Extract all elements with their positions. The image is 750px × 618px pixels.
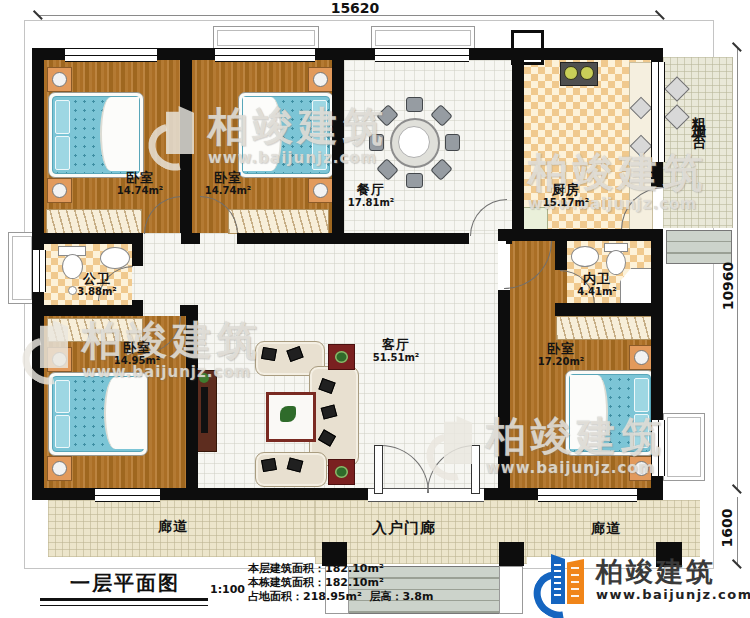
room-label-bedroom-top-left: 卧室 14.74m² xyxy=(117,170,163,197)
wardrobe xyxy=(46,209,142,234)
bed-pillow xyxy=(634,378,649,412)
room-area: 17.20m² xyxy=(538,356,584,368)
room-label-entry-porch: 入户门廊 xyxy=(372,520,436,538)
window xyxy=(651,420,665,476)
wall-segment xyxy=(237,233,344,244)
wall-segment xyxy=(344,233,469,244)
bed-pillow xyxy=(312,136,327,170)
window xyxy=(65,48,157,62)
wardrobe xyxy=(228,209,329,234)
room-label-corridor-right: 廊道 xyxy=(591,520,621,537)
wall-segment xyxy=(181,233,200,244)
room-area: 17.81m² xyxy=(348,197,394,209)
bed-blanket xyxy=(570,375,608,449)
window xyxy=(375,48,469,62)
wall-segment xyxy=(651,476,663,500)
wall-segment xyxy=(44,305,143,316)
wall-segment xyxy=(651,162,663,187)
wall-segment xyxy=(637,488,651,500)
nightstand xyxy=(47,347,72,372)
wall-segment xyxy=(315,48,375,60)
stat-building-area: 本栋建筑面积：182.10m² xyxy=(248,576,433,590)
room-label-bedroom-bottom-right: 卧室 17.20m² xyxy=(538,341,584,368)
entry-door-leaf xyxy=(471,445,480,494)
dining-chair xyxy=(406,173,423,188)
wall-segment xyxy=(555,303,651,316)
wardrobe xyxy=(556,316,653,340)
title-underline-thin xyxy=(40,605,208,606)
dining-chair xyxy=(369,134,384,151)
room-area: 14.74m² xyxy=(117,185,163,197)
logo-building-blue-icon xyxy=(551,554,565,604)
window xyxy=(32,250,46,292)
stove-burner xyxy=(564,66,578,80)
plan-scale: 1:100 xyxy=(210,583,245,596)
bed-pillow xyxy=(634,414,649,448)
logo-building-orange-icon xyxy=(567,559,584,604)
room-label-living: 客厅 51.51m² xyxy=(373,337,419,364)
wall-segment xyxy=(132,244,143,266)
plan-stats: 本层建筑面积：182.10m² 本栋建筑面积：182.10m² 占地面积：218… xyxy=(248,562,433,603)
wall-segment xyxy=(157,48,215,60)
company-name: 柏竣建筑 xyxy=(596,554,716,590)
room-area: 4.41m² xyxy=(577,286,616,298)
nightstand xyxy=(308,178,333,203)
room-area: 3.88m² xyxy=(77,286,116,298)
entry-door-leaf xyxy=(374,445,383,494)
stat-land-area: 占地面积：218.95m² xyxy=(248,590,362,603)
title-underline-thick xyxy=(40,598,208,601)
wall-segment xyxy=(484,488,538,500)
window xyxy=(651,62,665,162)
wall-segment xyxy=(32,292,44,500)
top-bay-bedroom xyxy=(213,26,319,50)
room-label-inner-bath: 内卫 4.41m² xyxy=(577,271,616,298)
room-name: 廊道 xyxy=(591,520,621,537)
dining-chair xyxy=(406,97,423,112)
plant xyxy=(199,373,209,383)
bed-pillow xyxy=(55,415,70,448)
room-area: 14.74m² xyxy=(205,185,251,197)
floor-drain xyxy=(68,286,77,295)
room-name: 内卫 xyxy=(577,271,616,286)
company-url: www.baijunjz.com xyxy=(596,587,750,602)
bed-blanket xyxy=(100,97,139,171)
stat-story-height: 层高：3.8m xyxy=(369,590,433,603)
room-label-platform: 粗加工平台 xyxy=(689,106,708,126)
wall-segment xyxy=(186,316,198,488)
wall-segment xyxy=(332,60,344,233)
wall-segment xyxy=(651,48,663,62)
bed-blanket xyxy=(243,97,282,171)
room-name: 卧室 xyxy=(114,340,160,355)
sofa-side-table xyxy=(328,459,355,485)
wall-segment xyxy=(498,290,510,488)
dining-table-top xyxy=(398,126,430,158)
bed-pillow xyxy=(55,380,70,413)
nightstand xyxy=(47,67,72,92)
wash-basin xyxy=(571,246,599,267)
top-bay-dining xyxy=(371,26,475,50)
wall-segment xyxy=(651,229,663,420)
stat-land-row: 占地面积：218.95m² 层高：3.8m xyxy=(248,590,433,604)
tv xyxy=(201,387,208,433)
porch-pillar-right xyxy=(499,542,524,566)
room-name: 卧室 xyxy=(538,341,584,356)
dining-chair xyxy=(445,134,460,151)
company-logo-icon xyxy=(536,552,592,610)
room-name: 入户门廊 xyxy=(372,520,436,538)
coffee-table-plant xyxy=(280,406,296,422)
room-name: 餐厅 xyxy=(348,182,394,197)
dimension-line-porch xyxy=(737,497,738,565)
entry-steps-side-right xyxy=(499,566,523,614)
wall-segment xyxy=(32,48,44,250)
bed-pillow xyxy=(55,100,70,134)
sofa-cushion xyxy=(261,458,277,472)
wall-segment xyxy=(469,48,663,60)
room-label-bedroom-bottom-left: 卧室 14.95m² xyxy=(114,340,160,367)
dimension-porch-depth: 1600 xyxy=(719,503,735,553)
wall-segment xyxy=(555,241,567,270)
bed-pillow xyxy=(312,100,327,134)
wall-segment xyxy=(180,60,192,233)
bed-blanket xyxy=(104,377,144,449)
sofa-cushion xyxy=(261,347,277,361)
right-bay-window-box xyxy=(663,413,705,481)
room-name: 卧室 xyxy=(205,170,251,185)
stove-burner xyxy=(580,66,594,80)
window xyxy=(95,488,160,502)
room-area: 51.51m² xyxy=(373,352,419,364)
dimension-line-right xyxy=(737,48,738,490)
room-area: 15.17m² xyxy=(543,197,589,209)
bed-pillow xyxy=(55,136,70,170)
room-name: 厨房 xyxy=(543,182,589,197)
nightstand xyxy=(47,178,72,203)
nightstand xyxy=(308,67,333,92)
room-area: 14.95m² xyxy=(114,355,160,367)
nightstand xyxy=(47,456,72,481)
wall-segment xyxy=(512,60,524,233)
room-label-corridor-left: 廊道 xyxy=(158,518,188,535)
window xyxy=(215,48,315,62)
room-name: 客厅 xyxy=(373,337,419,352)
wall-segment xyxy=(44,488,95,500)
dimension-top-width: 15620 xyxy=(322,0,388,16)
room-name: 公卫 xyxy=(77,271,116,286)
wall-segment xyxy=(180,305,198,316)
wall-segment xyxy=(44,233,143,244)
dimension-right-height: 10960 xyxy=(720,258,736,314)
wardrobe xyxy=(47,318,143,342)
plan-title: 一层平面图 xyxy=(44,570,206,597)
room-label-dining: 餐厅 17.81m² xyxy=(348,182,394,209)
room-name: 廊道 xyxy=(158,518,188,535)
room-label-bedroom-top-mid: 卧室 14.74m² xyxy=(205,170,251,197)
room-name: 卧室 xyxy=(117,170,163,185)
sofa-side-table xyxy=(328,344,355,370)
room-label-public-bath: 公卫 3.88m² xyxy=(77,271,116,298)
floor-plan-canvas: 柏竣建筑 www.baijunjz.com 柏竣建筑 www.baijunjz.… xyxy=(0,0,750,618)
wall-segment xyxy=(498,229,663,241)
room-label-kitchen: 厨房 15.17m² xyxy=(543,182,589,209)
stat-floor-area: 本层建筑面积：182.10m² xyxy=(248,562,433,576)
window xyxy=(538,488,637,502)
wall-segment xyxy=(160,488,368,500)
